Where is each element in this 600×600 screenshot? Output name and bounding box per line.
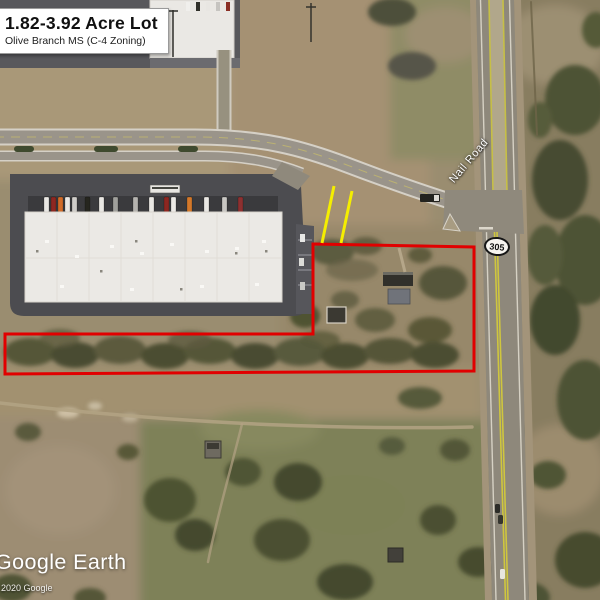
google-earth-logo: Google Earth: [0, 550, 127, 575]
listing-info-box: 1.82-3.92 Acre Lot Olive Branch MS (C-4 …: [0, 8, 169, 54]
satellite-imagery: [0, 0, 600, 600]
satellite-map-view[interactable]: 1.82-3.92 Acre Lot Olive Branch MS (C-4 …: [0, 0, 600, 600]
listing-title: 1.82-3.92 Acre Lot: [5, 13, 158, 33]
copyright-text: 2020 Google: [1, 583, 53, 593]
listing-subtitle: Olive Branch MS (C-4 Zoning): [5, 35, 158, 47]
